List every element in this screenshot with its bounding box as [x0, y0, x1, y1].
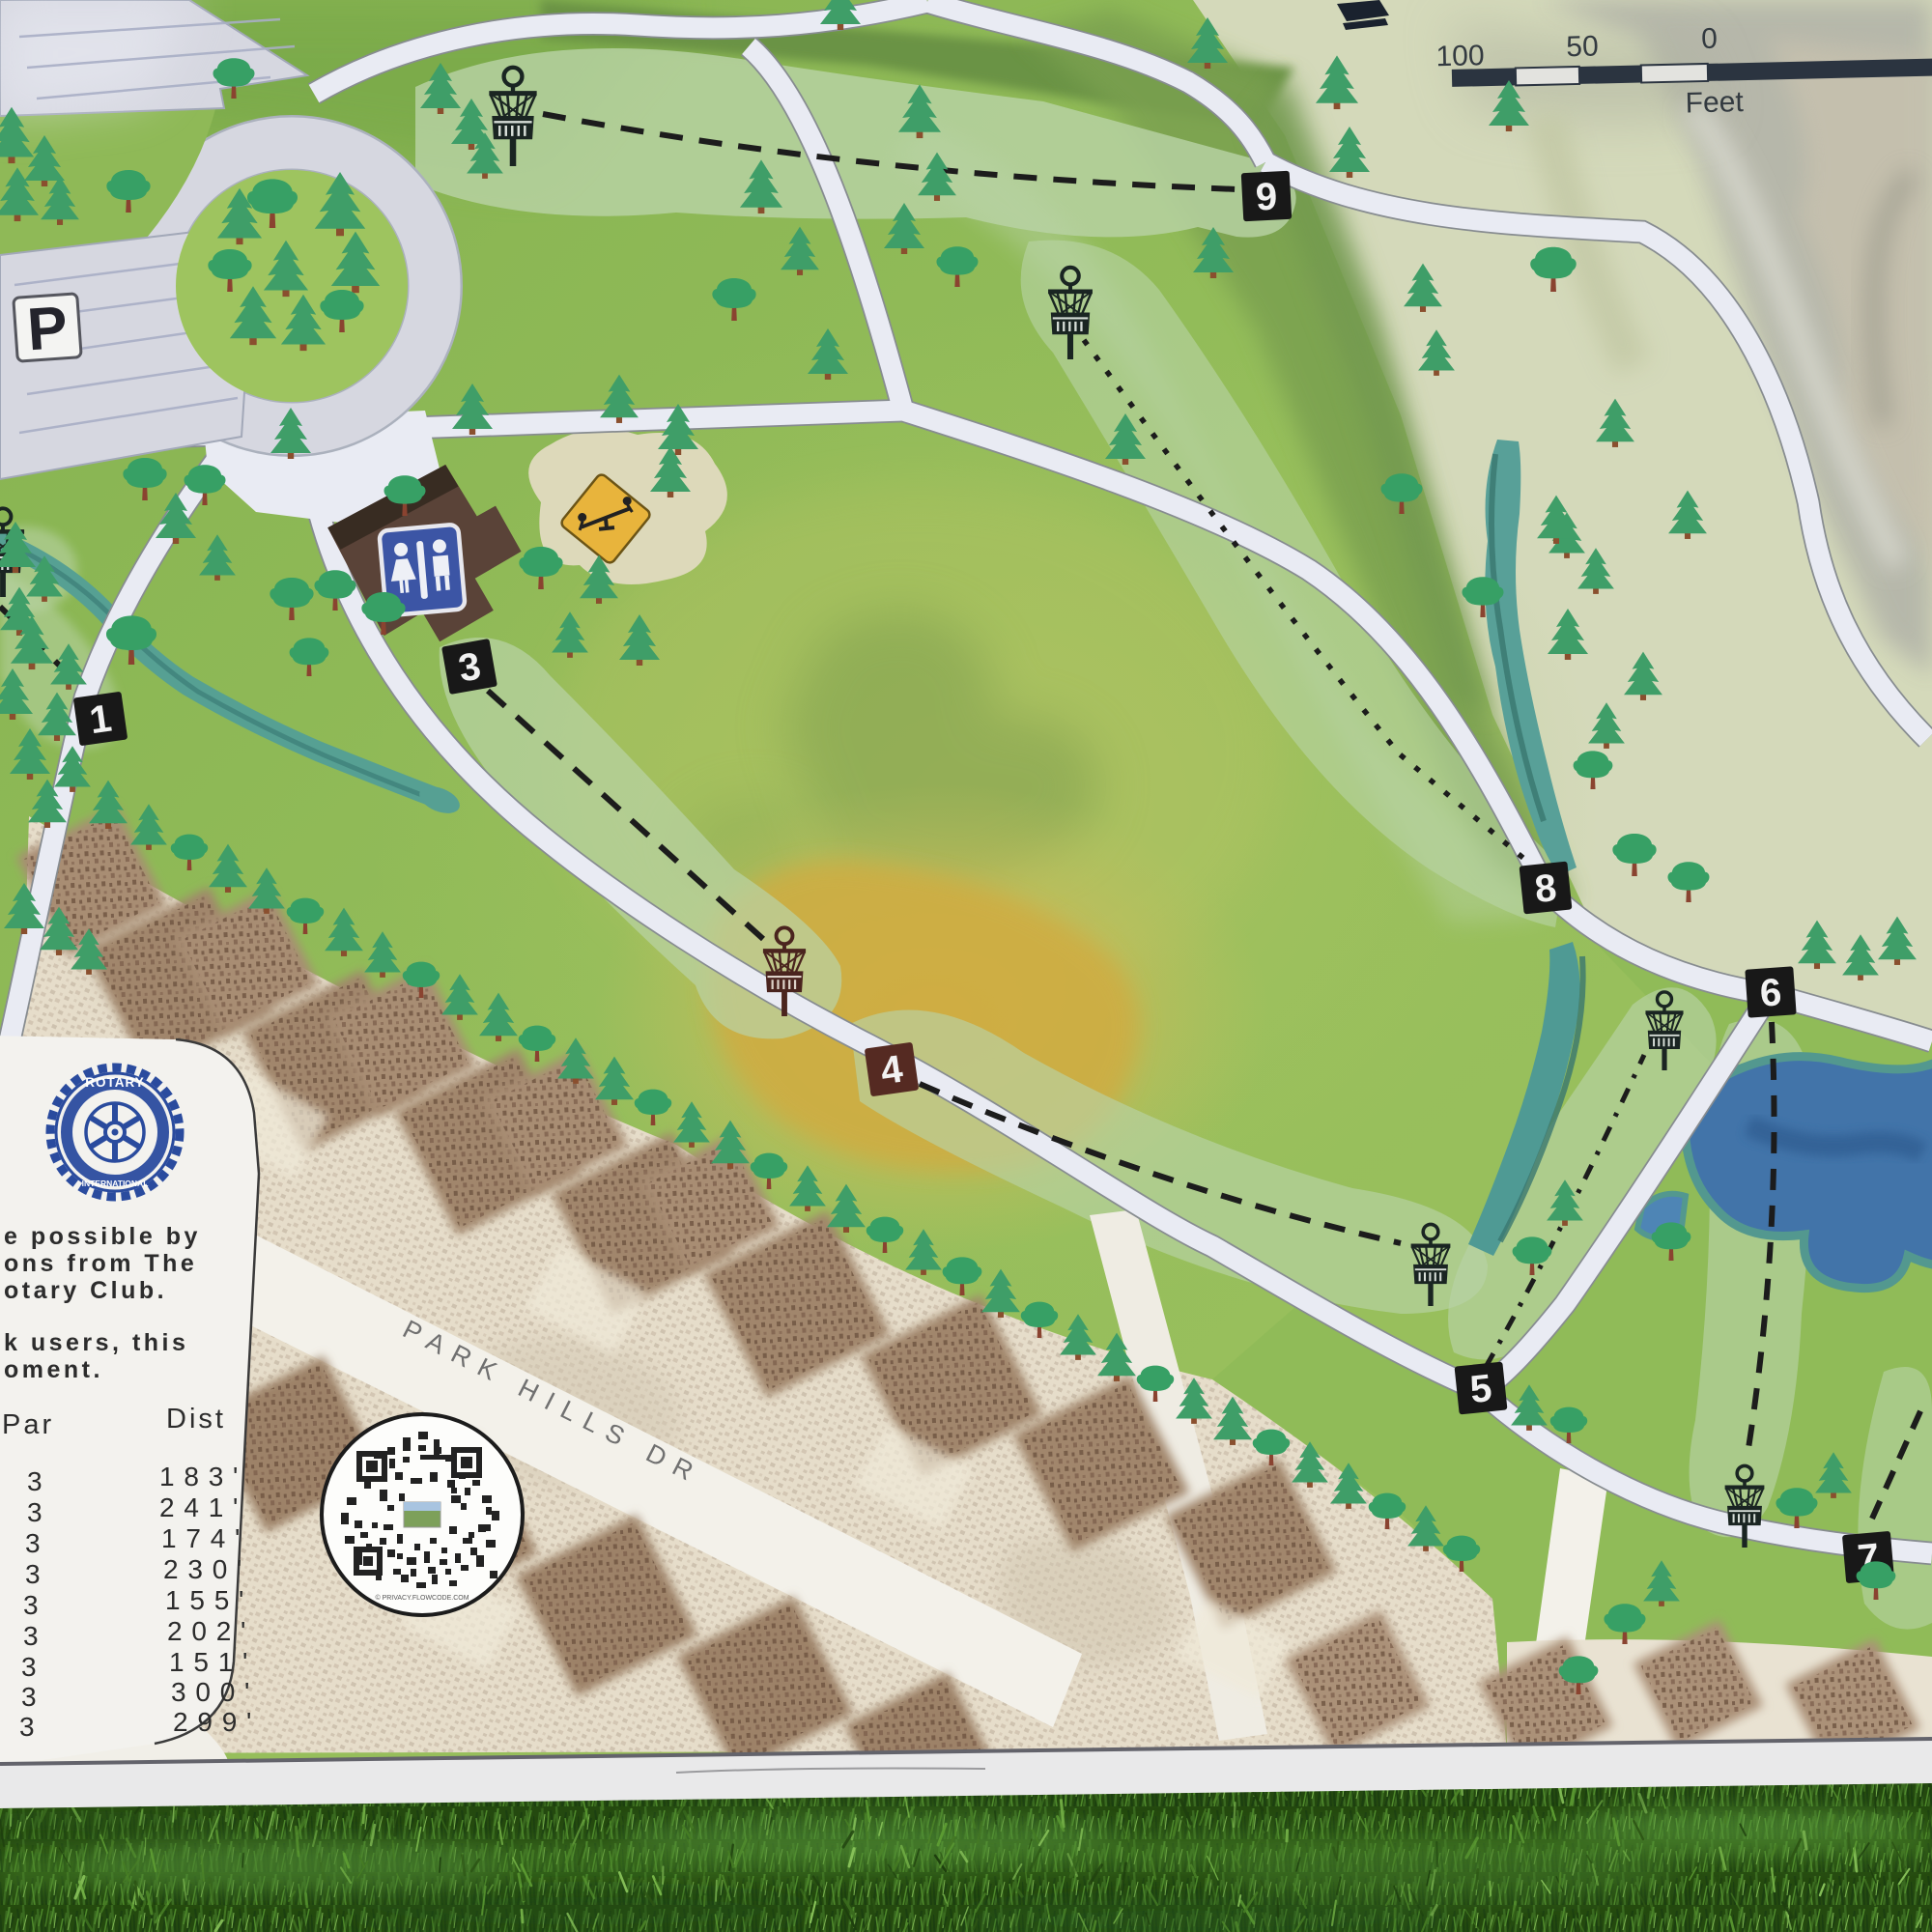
svg-text:ROTARY: ROTARY [85, 1075, 145, 1090]
svg-text:8: 8 [1533, 867, 1559, 911]
svg-text:Dist: Dist [166, 1404, 226, 1435]
svg-text:5: 5 [1468, 1367, 1494, 1411]
svg-text:otary Club.: otary Club. [4, 1277, 167, 1304]
svg-text:1 5 5 ': 1 5 5 ' [165, 1585, 244, 1615]
svg-text:3: 3 [19, 1712, 38, 1742]
svg-text:P: P [25, 295, 70, 364]
svg-text:Feet: Feet [1685, 86, 1744, 119]
svg-text:3: 3 [23, 1590, 42, 1620]
svg-text:9: 9 [1255, 175, 1279, 218]
svg-text:100: 100 [1435, 40, 1485, 72]
svg-text:3: 3 [25, 1528, 43, 1558]
svg-text:3 0 0 ': 3 0 0 ' [171, 1677, 250, 1707]
svg-text:0: 0 [1701, 23, 1718, 55]
svg-text:6: 6 [1758, 971, 1782, 1014]
svg-text:oment.: oment. [4, 1356, 103, 1383]
svg-text:3: 3 [27, 1497, 45, 1527]
svg-text:3: 3 [27, 1466, 45, 1496]
svg-text:k users, this: k users, this [4, 1329, 188, 1356]
svg-text:2 4 1 ': 2 4 1 ' [159, 1492, 239, 1522]
svg-text:50: 50 [1566, 30, 1599, 63]
svg-text:3: 3 [25, 1559, 43, 1589]
svg-text:1 7 4 ': 1 7 4 ' [161, 1523, 241, 1553]
svg-text:1 8 3 ': 1 8 3 ' [159, 1462, 239, 1492]
svg-text:INTERNATIONAL: INTERNATIONAL [82, 1179, 149, 1188]
svg-text:2 3 0 ': 2 3 0 ' [163, 1554, 242, 1584]
svg-text:Par: Par [2, 1409, 54, 1440]
svg-text:© PRIVACY.FLOWCODE.COM: © PRIVACY.FLOWCODE.COM [375, 1594, 469, 1602]
svg-text:3: 3 [21, 1682, 40, 1712]
svg-text:1 5 1 ': 1 5 1 ' [169, 1647, 248, 1677]
svg-text:ons from The: ons from The [4, 1250, 197, 1277]
svg-text:2 0 2 ': 2 0 2 ' [167, 1616, 246, 1646]
svg-text:e possible by: e possible by [4, 1223, 201, 1250]
svg-text:3: 3 [21, 1652, 40, 1682]
svg-text:2 9 9 ': 2 9 9 ' [173, 1707, 252, 1737]
svg-text:3: 3 [23, 1621, 42, 1651]
